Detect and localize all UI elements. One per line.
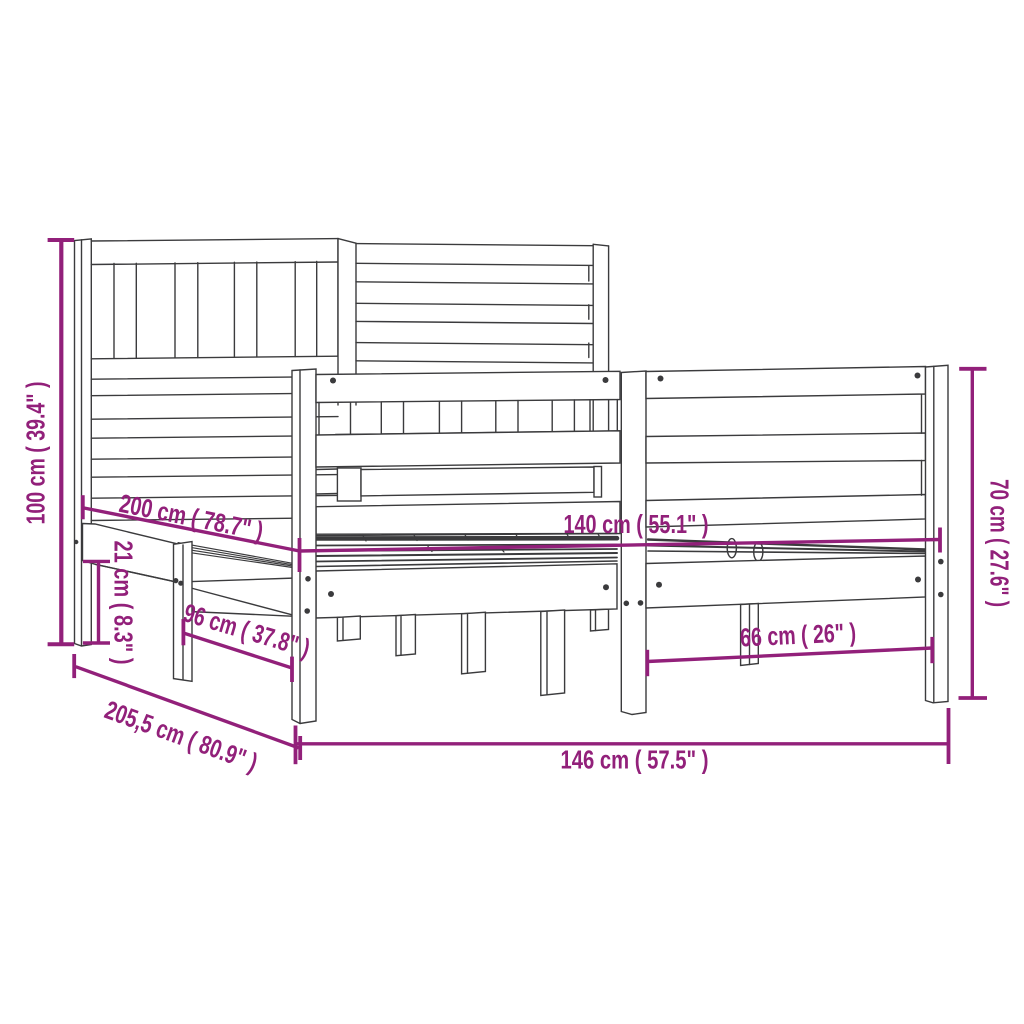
svg-text:21 cm ( 8.3" ): 21 cm ( 8.3" ) — [109, 541, 139, 665]
svg-text:100 cm ( 39.4" ): 100 cm ( 39.4" ) — [21, 382, 51, 525]
svg-text:66 cm ( 26" ): 66 cm ( 26" ) — [739, 617, 856, 652]
svg-text:146 cm ( 57.5" ): 146 cm ( 57.5" ) — [561, 745, 709, 775]
svg-text:140 cm ( 55.1" ): 140 cm ( 55.1" ) — [564, 509, 709, 539]
svg-text:70 cm ( 27.6" ): 70 cm ( 27.6" ) — [985, 479, 1015, 607]
